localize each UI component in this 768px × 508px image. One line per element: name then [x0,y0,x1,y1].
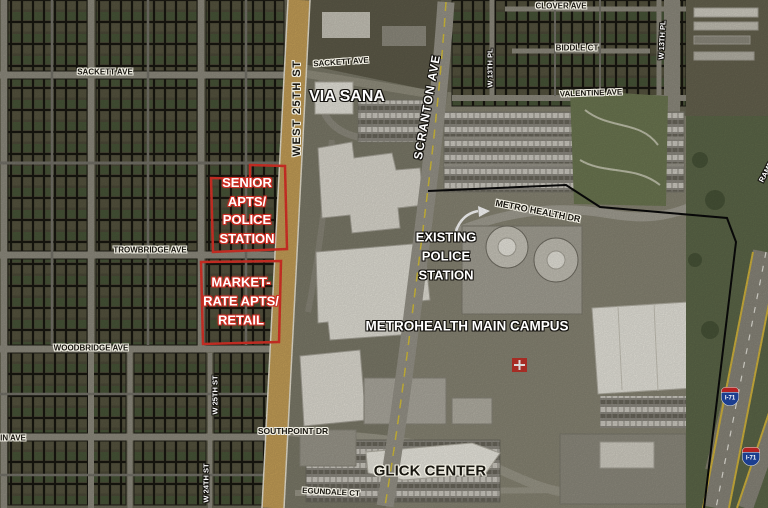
street-label-southpoint-dr: SOUTHPOINT DR [258,426,328,436]
site-label-line: POLICE [416,247,477,266]
street-label-via-sana: VIA SANA [309,88,385,106]
interstate-shield: I-71 [743,448,760,467]
site-label-line: APTS/ [219,193,274,212]
street-label-in-ave: IN AVE [0,434,26,443]
place-label-glick-center: GLICK CENTER [374,463,487,480]
street-label-w-13th-pl-w: W 13TH PL [486,48,495,87]
site-label-line: POLICE [219,211,274,230]
site-label-line: STATION [219,230,274,249]
street-label-west-25th-st: WEST 25TH ST [291,60,303,157]
site-label-senior-apts: SENIOR APTS/ POLICE STATION [219,174,274,248]
shield-number: I-71 [722,393,739,406]
street-label-trowbridge-ave: TROWBRIDGE AVE [113,246,186,255]
interstate-shield: I-71 [722,388,739,407]
shield-number: I-71 [743,453,760,466]
street-label-w-24th-st: W 24TH ST [202,463,211,502]
site-label-line: EXISTING [416,228,477,247]
street-label-w-25th-st: W 25TH ST [211,375,220,414]
site-label-line: SENIOR [219,174,274,193]
street-label-woodbridge-ave: WOODBRIDGE AVE [54,344,129,353]
place-label-metrohealth-campus: METROHEALTH MAIN CAMPUS [366,319,569,334]
street-label-biddle-ct: BIDDLE CT [556,44,599,53]
site-label-line: RETAIL [203,311,279,330]
site-label-line: MARKET- [203,273,279,292]
site-label-existing-police: EXISTING POLICE STATION [416,228,477,285]
street-label-sackett-ave-w: SACKETT AVE [77,68,133,77]
site-label-market-rate: MARKET- RATE APTS/ RETAIL [203,273,279,330]
aerial-map: SACKETT AVE WEST 25TH ST SACKETT AVE VIA… [0,0,768,508]
site-label-line: RATE APTS/ [203,292,279,311]
street-label-clover-ave: CLOVER AVE [535,2,586,11]
site-label-line: STATION [416,266,477,285]
